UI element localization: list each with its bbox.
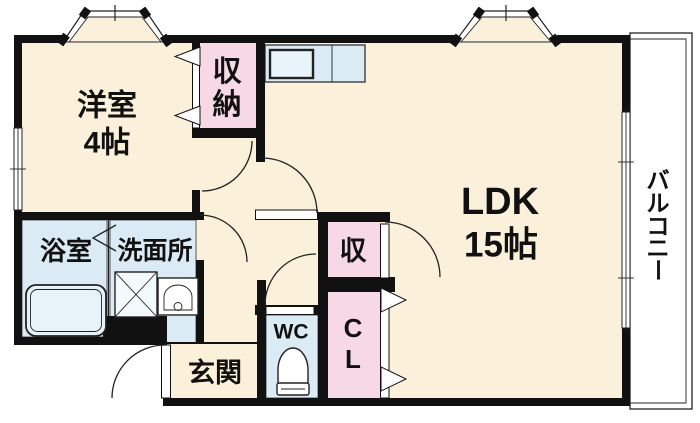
wall-segment	[103, 316, 167, 345]
label-closet-cl: C	[344, 313, 363, 343]
wall-segment	[318, 212, 390, 222]
wc-door	[266, 307, 314, 315]
wall-segment	[192, 190, 200, 214]
label-entrance: 玄関	[188, 357, 242, 388]
label-ldk: LDK	[461, 181, 540, 223]
wall-segment	[256, 43, 265, 162]
label-closet-cl: L	[345, 344, 361, 374]
wall-segment	[14, 35, 22, 128]
label-western-room: 洋室	[77, 89, 137, 123]
wall-segment	[622, 328, 630, 406]
wall-segment	[257, 280, 266, 398]
wall-segment	[318, 212, 328, 398]
storage-door	[381, 224, 390, 278]
floor-plan: 洋室 4帖 収 納 LDK 15帖 浴室 洗面所 WC 玄関 収 C L バ ル…	[0, 0, 700, 423]
kitchen-sink-icon	[270, 50, 313, 78]
wall-segment	[14, 35, 63, 43]
bathtub-icon	[26, 285, 106, 336]
label-closet-west: 収	[212, 55, 242, 88]
wall-segment	[14, 210, 22, 345]
wall-segment	[192, 128, 264, 138]
label-storage: 収	[340, 236, 368, 266]
label-balcony: ニ	[647, 235, 670, 261]
wall-segment	[14, 212, 204, 220]
entrance-door-leaf	[162, 345, 171, 398]
label-balcony: ー	[645, 259, 671, 282]
ldk-door-leaf	[256, 210, 318, 220]
label-wc: WC	[274, 321, 309, 344]
label-ldk-size: 15帖	[464, 226, 538, 265]
wall-segment	[167, 35, 455, 43]
wall-segment	[557, 35, 630, 43]
label-washroom: 洗面所	[117, 237, 192, 265]
label-western-room-size: 4帖	[84, 127, 131, 160]
label-closet-west: 納	[212, 87, 241, 121]
wall-segment	[163, 398, 630, 406]
label-bathroom: 浴室	[40, 236, 92, 266]
entrance-porch	[10, 345, 163, 423]
wall-segment	[622, 35, 630, 112]
kitchen-counter	[265, 45, 365, 82]
